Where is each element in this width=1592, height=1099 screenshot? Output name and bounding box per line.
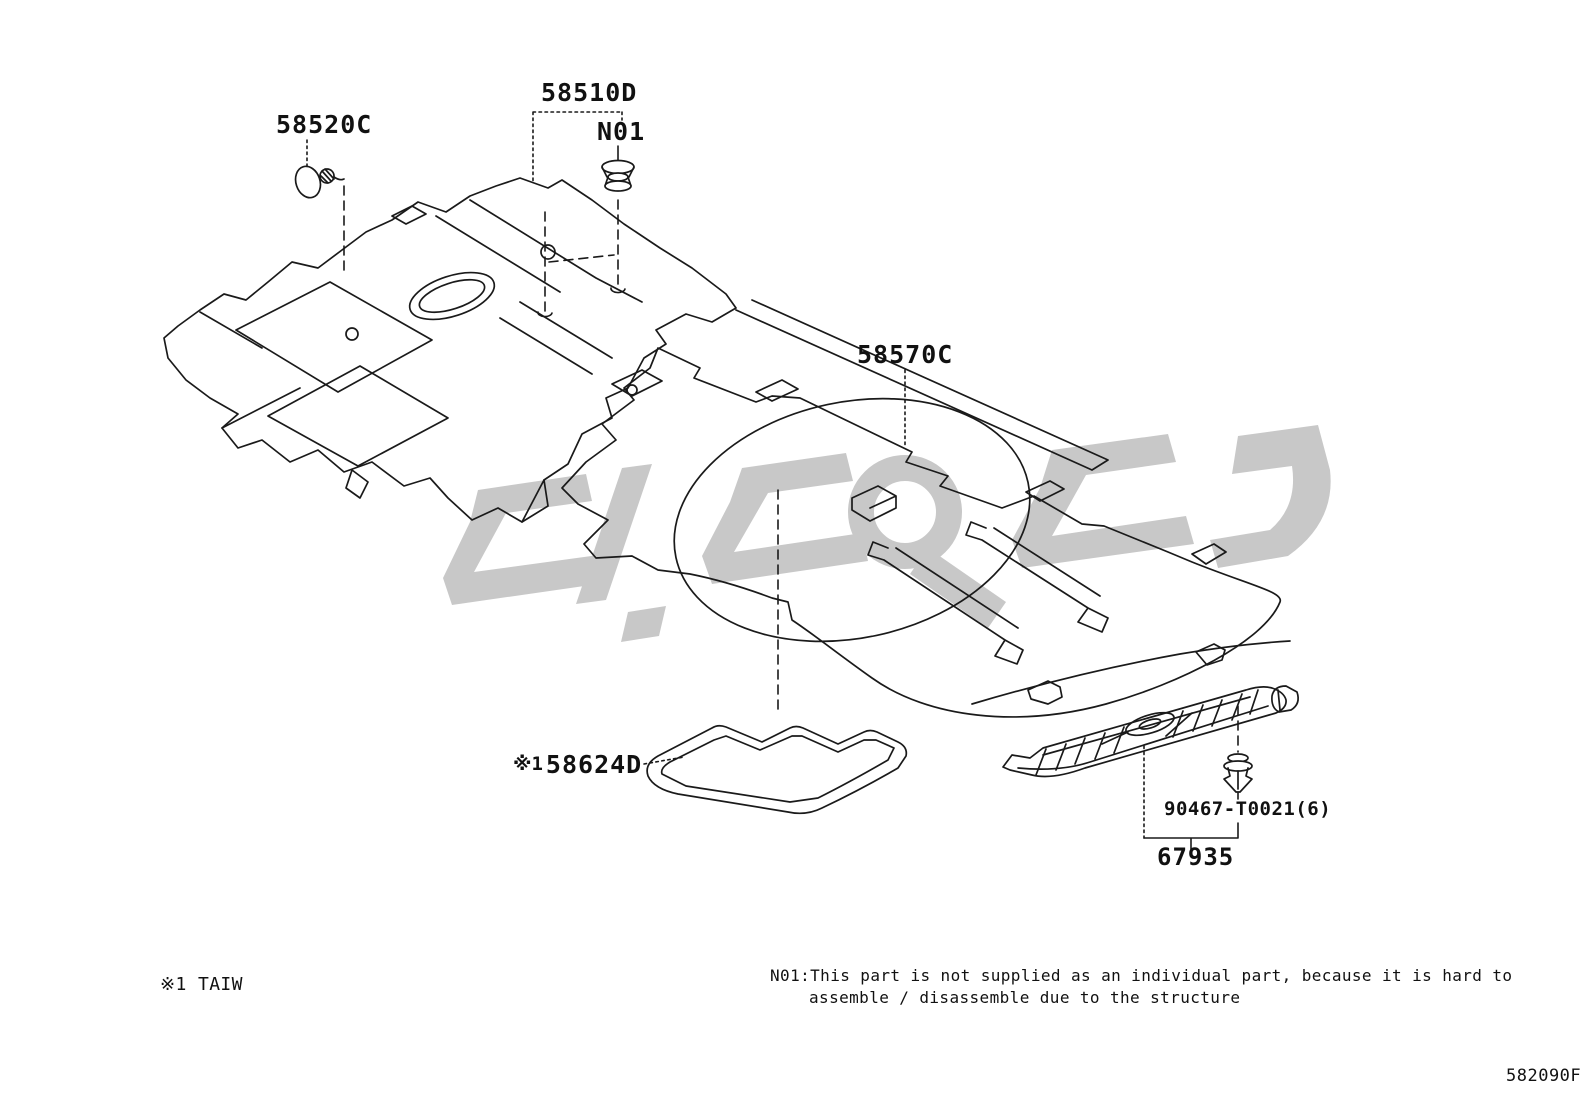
footnote-n01-line2: assemble / disassemble due to the struct… — [809, 990, 1240, 1006]
install-cups — [538, 288, 625, 317]
watermark-stroke — [702, 453, 868, 584]
diagram-artwork — [0, 0, 1592, 1099]
callout-58520C[interactable]: 58520C — [276, 112, 372, 137]
callout-58624D-number: 58624D — [546, 752, 642, 777]
clip-head[interactable] — [292, 163, 325, 201]
carpet-edge-hooks — [1028, 644, 1225, 704]
fastener-clip-90467[interactable] — [1224, 754, 1252, 792]
pad-inner-line — [662, 736, 894, 802]
shifter-hole-ring-inner — [416, 273, 489, 319]
watermark-stroke — [1210, 425, 1331, 568]
grommet-top[interactable] — [602, 161, 634, 174]
fastener-clip-58520C[interactable] — [292, 163, 344, 201]
watermark-logo — [443, 425, 1331, 642]
callout-90467-T0021[interactable]: 90467-T0021(6) — [1164, 800, 1331, 819]
callout-58624D-note-ref: ※1 — [513, 755, 543, 774]
dash-line-install-horiz — [549, 255, 614, 262]
shifter-hole-ring — [404, 263, 500, 328]
callout-N01[interactable]: N01 — [597, 119, 645, 144]
scuff-plate-ribs — [1036, 690, 1258, 775]
callout-67935[interactable]: 67935 — [1157, 845, 1234, 869]
footnote-n01-line1: N01:This part is not supplied as an indi… — [770, 968, 1512, 984]
rear-carpet-hole — [627, 385, 637, 395]
front-carpet-details — [200, 200, 1108, 522]
parts-diagram-page: 58520C 58510D N01 58570C ※1 58624D 90467… — [0, 0, 1592, 1099]
callout-58510D[interactable]: 58510D — [541, 80, 637, 105]
fastener-grommet-N01[interactable] — [602, 161, 634, 192]
grommet-base — [605, 181, 631, 191]
grommet-mid — [608, 173, 628, 181]
carpet-grommet-hole — [346, 328, 358, 340]
callout-58624D[interactable]: ※1 58624D — [513, 752, 642, 777]
clip-tail — [334, 177, 344, 180]
rivet-body — [1224, 768, 1252, 792]
footnote-region: ※1 TAIW — [160, 976, 243, 994]
scuff-plate-emblem — [1123, 708, 1176, 740]
watermark-stroke — [621, 606, 666, 642]
callout-58570C[interactable]: 58570C — [857, 342, 953, 367]
front-carpet-outline[interactable] — [164, 178, 736, 522]
part-floor-pad-58624D[interactable] — [647, 726, 906, 814]
figure-code: 582090F — [1506, 1068, 1581, 1085]
